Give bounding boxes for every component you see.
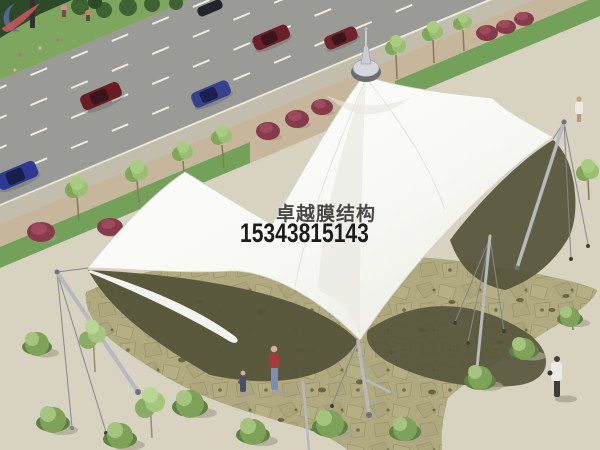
- company-logo: [0, 0, 42, 34]
- red-bush: [514, 12, 534, 26]
- rendering-canvas: 卓越膜结构 15343815143: [0, 0, 600, 450]
- red-bush: [496, 20, 516, 34]
- watermark-phone-number: 15343815143: [240, 220, 369, 247]
- spire-tip: [364, 27, 368, 31]
- red-bush: [476, 25, 498, 41]
